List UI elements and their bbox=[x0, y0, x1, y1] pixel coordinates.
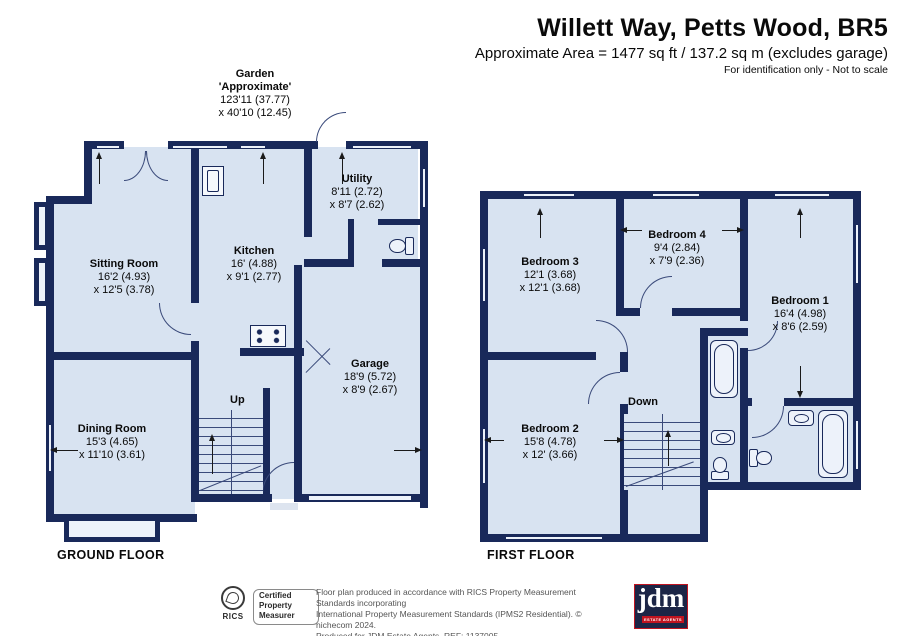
rics-crest-icon bbox=[221, 586, 245, 610]
dimension-arrow bbox=[540, 214, 541, 238]
window bbox=[523, 193, 575, 197]
room-label-kitchen: Kitchen 16' (4.88) x 9'1 (2.77) bbox=[189, 245, 319, 284]
room-name: Sitting Room bbox=[59, 258, 189, 271]
bay-window bbox=[64, 516, 160, 542]
stairs bbox=[199, 410, 263, 494]
wall bbox=[672, 308, 747, 316]
dimension-arrow bbox=[212, 440, 213, 474]
window bbox=[422, 168, 426, 208]
garden-title: Garden bbox=[190, 68, 320, 81]
dimension-arrow bbox=[800, 214, 801, 238]
wall bbox=[382, 259, 428, 267]
room-name: Kitchen bbox=[189, 245, 319, 258]
room-label-bedroom-3: Bedroom 3 12'1 (3.68) x 12'1 (3.68) bbox=[485, 256, 615, 295]
room-label-garage: Garage 18'9 (5.72) x 8'9 (2.67) bbox=[305, 358, 435, 397]
room-name: Garage bbox=[305, 358, 435, 371]
kitchen-sink bbox=[202, 166, 224, 196]
room-label-bedroom-2: Bedroom 2 15'8 (4.78) x 12' (3.66) bbox=[485, 423, 615, 462]
wall bbox=[378, 219, 428, 225]
room-dim: x 9'1 (2.77) bbox=[189, 271, 319, 284]
disclaimer-line: Floor plan produced in accordance with R… bbox=[316, 587, 616, 609]
disclaimer-line: Produced for JDM Estate Agents. REF: 113… bbox=[316, 631, 616, 636]
dimension-arrow bbox=[800, 366, 801, 392]
room-dim: x 8'7 (2.62) bbox=[292, 199, 422, 212]
dimension-arrow bbox=[263, 158, 264, 184]
window bbox=[172, 145, 228, 149]
room-dim: 12'1 (3.68) bbox=[485, 269, 615, 282]
room-dim: x 12'5 (3.78) bbox=[59, 284, 189, 297]
sink bbox=[711, 430, 735, 445]
cooker-hob bbox=[250, 325, 286, 347]
room-label-bedroom-1: Bedroom 1 16'4 (4.98) x 8'6 (2.59) bbox=[740, 295, 860, 334]
rics-brand: RICS bbox=[217, 612, 249, 621]
bathtub bbox=[710, 340, 738, 398]
bay-window bbox=[34, 258, 50, 306]
wall bbox=[480, 352, 596, 360]
wall bbox=[191, 494, 272, 502]
room-dim: x 7'9 (2.36) bbox=[617, 255, 737, 268]
room-dim: 8'11 (2.72) bbox=[292, 186, 422, 199]
room-name: Bedroom 2 bbox=[485, 423, 615, 436]
door-step bbox=[270, 503, 298, 510]
room-name: Utility bbox=[292, 173, 422, 186]
ground-floor-label: GROUND FLOOR bbox=[57, 548, 165, 562]
room-label-dining-room: Dining Room 15'3 (4.65) x 11'10 (3.61) bbox=[47, 423, 177, 462]
garage-door bbox=[308, 495, 412, 501]
disclaimer-line: International Property Measurement Stand… bbox=[316, 609, 616, 631]
wall bbox=[700, 482, 708, 542]
window bbox=[505, 536, 603, 540]
door-arc bbox=[316, 112, 346, 142]
wall bbox=[191, 352, 199, 502]
window bbox=[352, 145, 412, 149]
bay-window bbox=[34, 202, 50, 250]
disclaimer-text: Floor plan produced in accordance with R… bbox=[316, 587, 616, 636]
rics-badge-line: Certified bbox=[259, 591, 313, 601]
first-floor-label: FIRST FLOOR bbox=[487, 548, 575, 562]
room-dim: x 11'10 (3.61) bbox=[47, 449, 177, 462]
rics-badge-line: Property bbox=[259, 601, 313, 611]
sink bbox=[788, 410, 814, 426]
wall bbox=[700, 328, 708, 490]
room-dim: 15'3 (4.65) bbox=[47, 436, 177, 449]
room-dim: 16'4 (4.98) bbox=[740, 308, 860, 321]
garden-dim: 123'11 (37.77) bbox=[190, 94, 320, 107]
wall bbox=[784, 398, 861, 406]
rics-badge-line: Measurer bbox=[259, 611, 313, 621]
wall bbox=[620, 352, 628, 372]
jdm-tagline: ESTATE AGENTS bbox=[642, 616, 684, 623]
garden-subtitle: 'Approximate' bbox=[190, 81, 320, 94]
garden-dim: x 40'10 (12.45) bbox=[190, 107, 320, 120]
identification-note: For identification only - Not to scale bbox=[724, 64, 888, 76]
jdm-logo: jdm ESTATE AGENTS bbox=[634, 584, 688, 629]
stairs-down-label: Down bbox=[628, 396, 658, 408]
toilet bbox=[749, 447, 773, 469]
room-label-bedroom-4: Bedroom 4 9'4 (2.84) x 7'9 (2.36) bbox=[617, 229, 737, 268]
wall bbox=[191, 341, 199, 360]
window bbox=[652, 193, 700, 197]
window bbox=[240, 145, 266, 149]
stairs bbox=[624, 414, 700, 490]
bathtub bbox=[818, 410, 848, 478]
window bbox=[96, 145, 120, 149]
stairs-up-label: Up bbox=[230, 394, 245, 406]
toilet bbox=[388, 235, 414, 257]
dimension-arrow bbox=[99, 158, 100, 184]
room-label-sitting-room: Sitting Room 16'2 (4.93) x 12'5 (3.78) bbox=[59, 258, 189, 297]
wall bbox=[700, 482, 861, 490]
room-dim: x 8'6 (2.59) bbox=[740, 321, 860, 334]
rics-certified-badge: Certified Property Measurer bbox=[253, 589, 319, 625]
wall bbox=[740, 348, 748, 490]
wall bbox=[480, 191, 488, 542]
room-name: Bedroom 4 bbox=[617, 229, 737, 242]
room-dim: x 8'9 (2.67) bbox=[305, 384, 435, 397]
dimension-arrow bbox=[394, 450, 416, 451]
garden-annotation: Garden 'Approximate' 123'11 (37.77) x 40… bbox=[190, 68, 320, 120]
room-name: Dining Room bbox=[47, 423, 177, 436]
room-dim: 16' (4.88) bbox=[189, 258, 319, 271]
jdm-brand: jdm bbox=[635, 583, 687, 614]
room-name: Bedroom 1 bbox=[740, 295, 860, 308]
window bbox=[855, 420, 859, 470]
room-dim: 9'4 (2.84) bbox=[617, 242, 737, 255]
window bbox=[774, 193, 830, 197]
wall bbox=[84, 141, 92, 203]
room-dim: x 12'1 (3.68) bbox=[485, 282, 615, 295]
floorplan-page: Willett Way, Petts Wood, BR5 Approximate… bbox=[0, 0, 900, 636]
wall bbox=[740, 398, 752, 406]
room-dim: x 12' (3.66) bbox=[485, 449, 615, 462]
window bbox=[855, 224, 859, 284]
wall bbox=[46, 352, 199, 360]
page-title: Willett Way, Petts Wood, BR5 bbox=[537, 14, 888, 43]
wall bbox=[294, 265, 302, 502]
dimension-arrow bbox=[668, 436, 669, 466]
room-name: Bedroom 3 bbox=[485, 256, 615, 269]
area-subtitle: Approximate Area = 1477 sq ft / 137.2 sq… bbox=[475, 45, 888, 62]
wall bbox=[348, 219, 354, 267]
wall bbox=[616, 308, 640, 316]
toilet bbox=[709, 456, 731, 480]
room-label-utility: Utility 8'11 (2.72) x 8'7 (2.62) bbox=[292, 173, 422, 212]
room-dim: 15'8 (4.78) bbox=[485, 436, 615, 449]
room-dim: 16'2 (4.93) bbox=[59, 271, 189, 284]
wall bbox=[240, 348, 304, 356]
room-dim: 18'9 (5.72) bbox=[305, 371, 435, 384]
